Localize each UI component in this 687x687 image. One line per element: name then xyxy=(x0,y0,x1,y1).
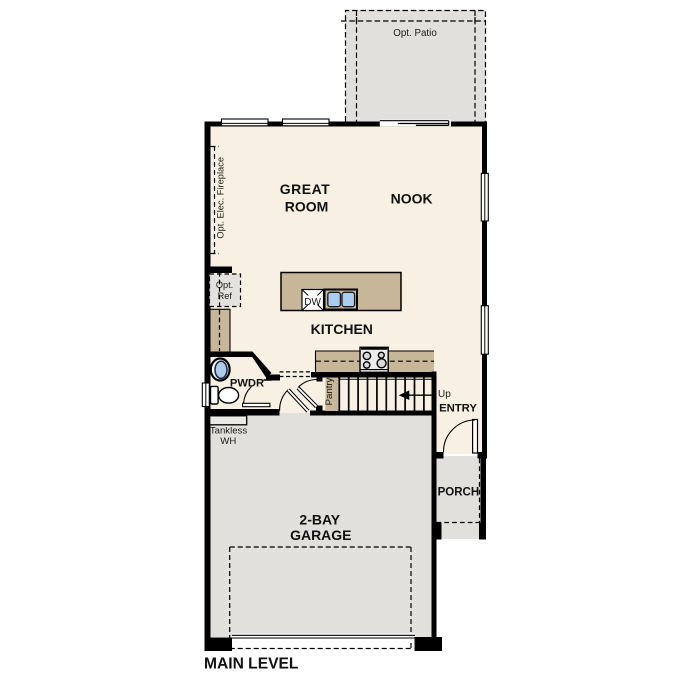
svg-text:MAIN LEVEL: MAIN LEVEL xyxy=(204,655,299,672)
svg-text:Opt.: Opt. xyxy=(216,280,233,290)
svg-text:2-BAY: 2-BAY xyxy=(299,512,340,528)
svg-text:WH: WH xyxy=(220,436,236,447)
svg-text:ENTRY: ENTRY xyxy=(439,402,477,414)
svg-text:GARAGE: GARAGE xyxy=(290,527,351,543)
svg-text:Tankless: Tankless xyxy=(210,426,248,437)
svg-text:DW: DW xyxy=(304,297,321,308)
svg-text:Up: Up xyxy=(438,389,451,400)
svg-text:GREAT: GREAT xyxy=(280,181,330,197)
svg-text:ROOM: ROOM xyxy=(285,199,329,215)
svg-text:KITCHEN: KITCHEN xyxy=(311,321,373,337)
svg-text:PORCH: PORCH xyxy=(438,487,480,499)
svg-text:Opt. Patio: Opt. Patio xyxy=(393,28,437,39)
svg-text:NOOK: NOOK xyxy=(391,191,433,207)
svg-text:PWDR: PWDR xyxy=(230,377,264,389)
svg-text:Opt. Elec. Fireplace: Opt. Elec. Fireplace xyxy=(216,157,226,239)
svg-text:Pantry: Pantry xyxy=(324,377,335,405)
